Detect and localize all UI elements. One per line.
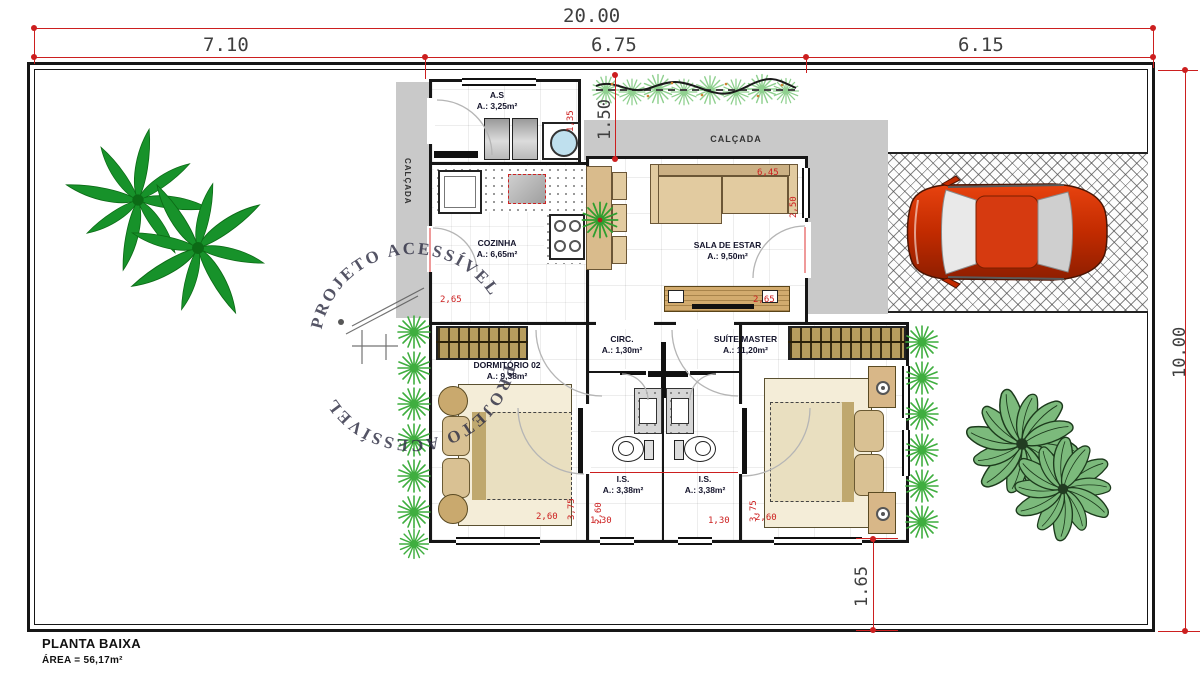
dim-sala-width: 6,45 <box>757 168 779 178</box>
dim-bath1-width: 1,30 <box>590 516 612 526</box>
pillow <box>442 416 470 456</box>
dim-line-total-width <box>34 28 1153 29</box>
window-servico <box>462 78 536 86</box>
door-leaf-suite <box>742 408 747 474</box>
label-banheiro1: I.S. A.: 3,38m² <box>590 474 656 496</box>
window-dormitorio2 <box>456 537 540 545</box>
speaker <box>668 290 684 303</box>
dim-dorm-width: 2,60 <box>536 512 558 522</box>
wardrobe-dormitorio2 <box>436 326 528 360</box>
label-servico: A.S A.: 3,25m² <box>437 90 557 112</box>
tv <box>692 304 754 309</box>
toilet-banheiro2 <box>684 436 716 462</box>
dim-rear-setback: 1.65 <box>852 566 872 607</box>
door-opening-circ-left <box>596 320 654 329</box>
door-leaf-banheiro2 <box>690 371 716 375</box>
door-leaf-servico <box>434 151 478 158</box>
dim-segment-left: 7.10 <box>203 34 249 56</box>
dim-total-height: 10.00 <box>1170 327 1190 378</box>
refrigerator <box>438 170 482 214</box>
label-calcada-top: CALÇADA <box>584 134 888 144</box>
sink-banheiro1 <box>639 398 657 424</box>
toilet-banheiro1 <box>612 436 644 462</box>
label-circulacao: CIRC. A.: 1,30m² <box>582 334 662 356</box>
window-banheiro1 <box>600 537 634 545</box>
nightstand <box>868 492 896 534</box>
shower-divider-line <box>590 472 738 473</box>
dim-cozinha: 2,65 <box>440 295 462 305</box>
bed-blanket <box>770 402 850 502</box>
dim-segment-mid: 6.75 <box>591 34 637 56</box>
dim-line-rear-setback <box>873 539 874 631</box>
label-cozinha: COZINHA A.: 6,65m² <box>442 238 552 260</box>
bed-fold <box>842 402 854 502</box>
nightstand <box>868 366 896 408</box>
bedside-table <box>438 386 468 416</box>
dim-line-segments <box>34 57 1153 58</box>
window-suite-bottom <box>774 537 862 545</box>
bedside-table <box>438 494 468 524</box>
pillow <box>442 458 470 498</box>
dim-bath2-width: 1,30 <box>708 516 730 526</box>
window-sala <box>802 168 810 218</box>
toilet-tank <box>674 440 684 460</box>
kitchen-peninsula <box>586 166 612 270</box>
sofa-chaise <box>658 176 722 224</box>
sofa-seat <box>722 176 788 214</box>
dim-servico: 1,35 <box>566 110 576 132</box>
window-banheiro2 <box>678 537 712 545</box>
stool <box>612 236 627 264</box>
window-suite-right2 <box>902 430 910 476</box>
pillow <box>854 454 884 496</box>
drawing-area: ÁREA = 56,17m² <box>42 655 123 666</box>
laundry-tank <box>484 118 510 160</box>
label-banheiro2: I.S. A.: 3,38m² <box>672 474 738 496</box>
stool <box>612 204 627 232</box>
label-dormitorio2: DORMITÓRIO 02 A.: 9,38m² <box>432 360 582 382</box>
washer-drum <box>550 129 578 157</box>
dim-segment-right: 6.15 <box>958 34 1004 56</box>
pillow <box>854 410 884 452</box>
entry-porch <box>808 160 888 314</box>
window-suite-right1 <box>902 366 910 418</box>
sink-banheiro2 <box>671 398 689 424</box>
door-opening-servico <box>427 98 435 144</box>
stool <box>612 172 627 200</box>
stove <box>549 214 585 260</box>
bed-blanket <box>472 412 572 500</box>
label-calcada-left: CALÇADA <box>403 158 412 205</box>
door-leaf-banheiro1 <box>620 371 646 375</box>
toilet-tank <box>644 440 654 460</box>
bed-fold <box>472 412 486 500</box>
dim-line-front-setback <box>615 74 616 160</box>
dim-sala-tv: 2,65 <box>753 295 775 305</box>
door-leaf-dormitorio2 <box>578 408 583 474</box>
dim-total-width: 20.00 <box>563 5 620 27</box>
kitchen-sink <box>508 174 546 204</box>
door-opening-dormitorio2 <box>582 404 591 474</box>
laundry-tank <box>512 118 538 160</box>
dim-sala-door: 2,50 <box>789 196 799 218</box>
label-suite: SUÍTE MASTER A.: 11,20m² <box>678 334 813 356</box>
drawing-title: PLANTA BAIXA <box>42 636 141 651</box>
floor-plan-canvas: PROJETO ACESSÍVEL PROJETO ACESSÍVEL 20.0… <box>0 0 1200 681</box>
door-opening-circ-right <box>676 320 734 329</box>
dim-suite-width: 2,60 <box>755 513 777 523</box>
driveway-paving <box>888 152 1148 313</box>
label-sala: SALA DE ESTAR A.: 9,50m² <box>660 240 795 262</box>
dim-dorm-height: 3,75 <box>567 498 577 520</box>
